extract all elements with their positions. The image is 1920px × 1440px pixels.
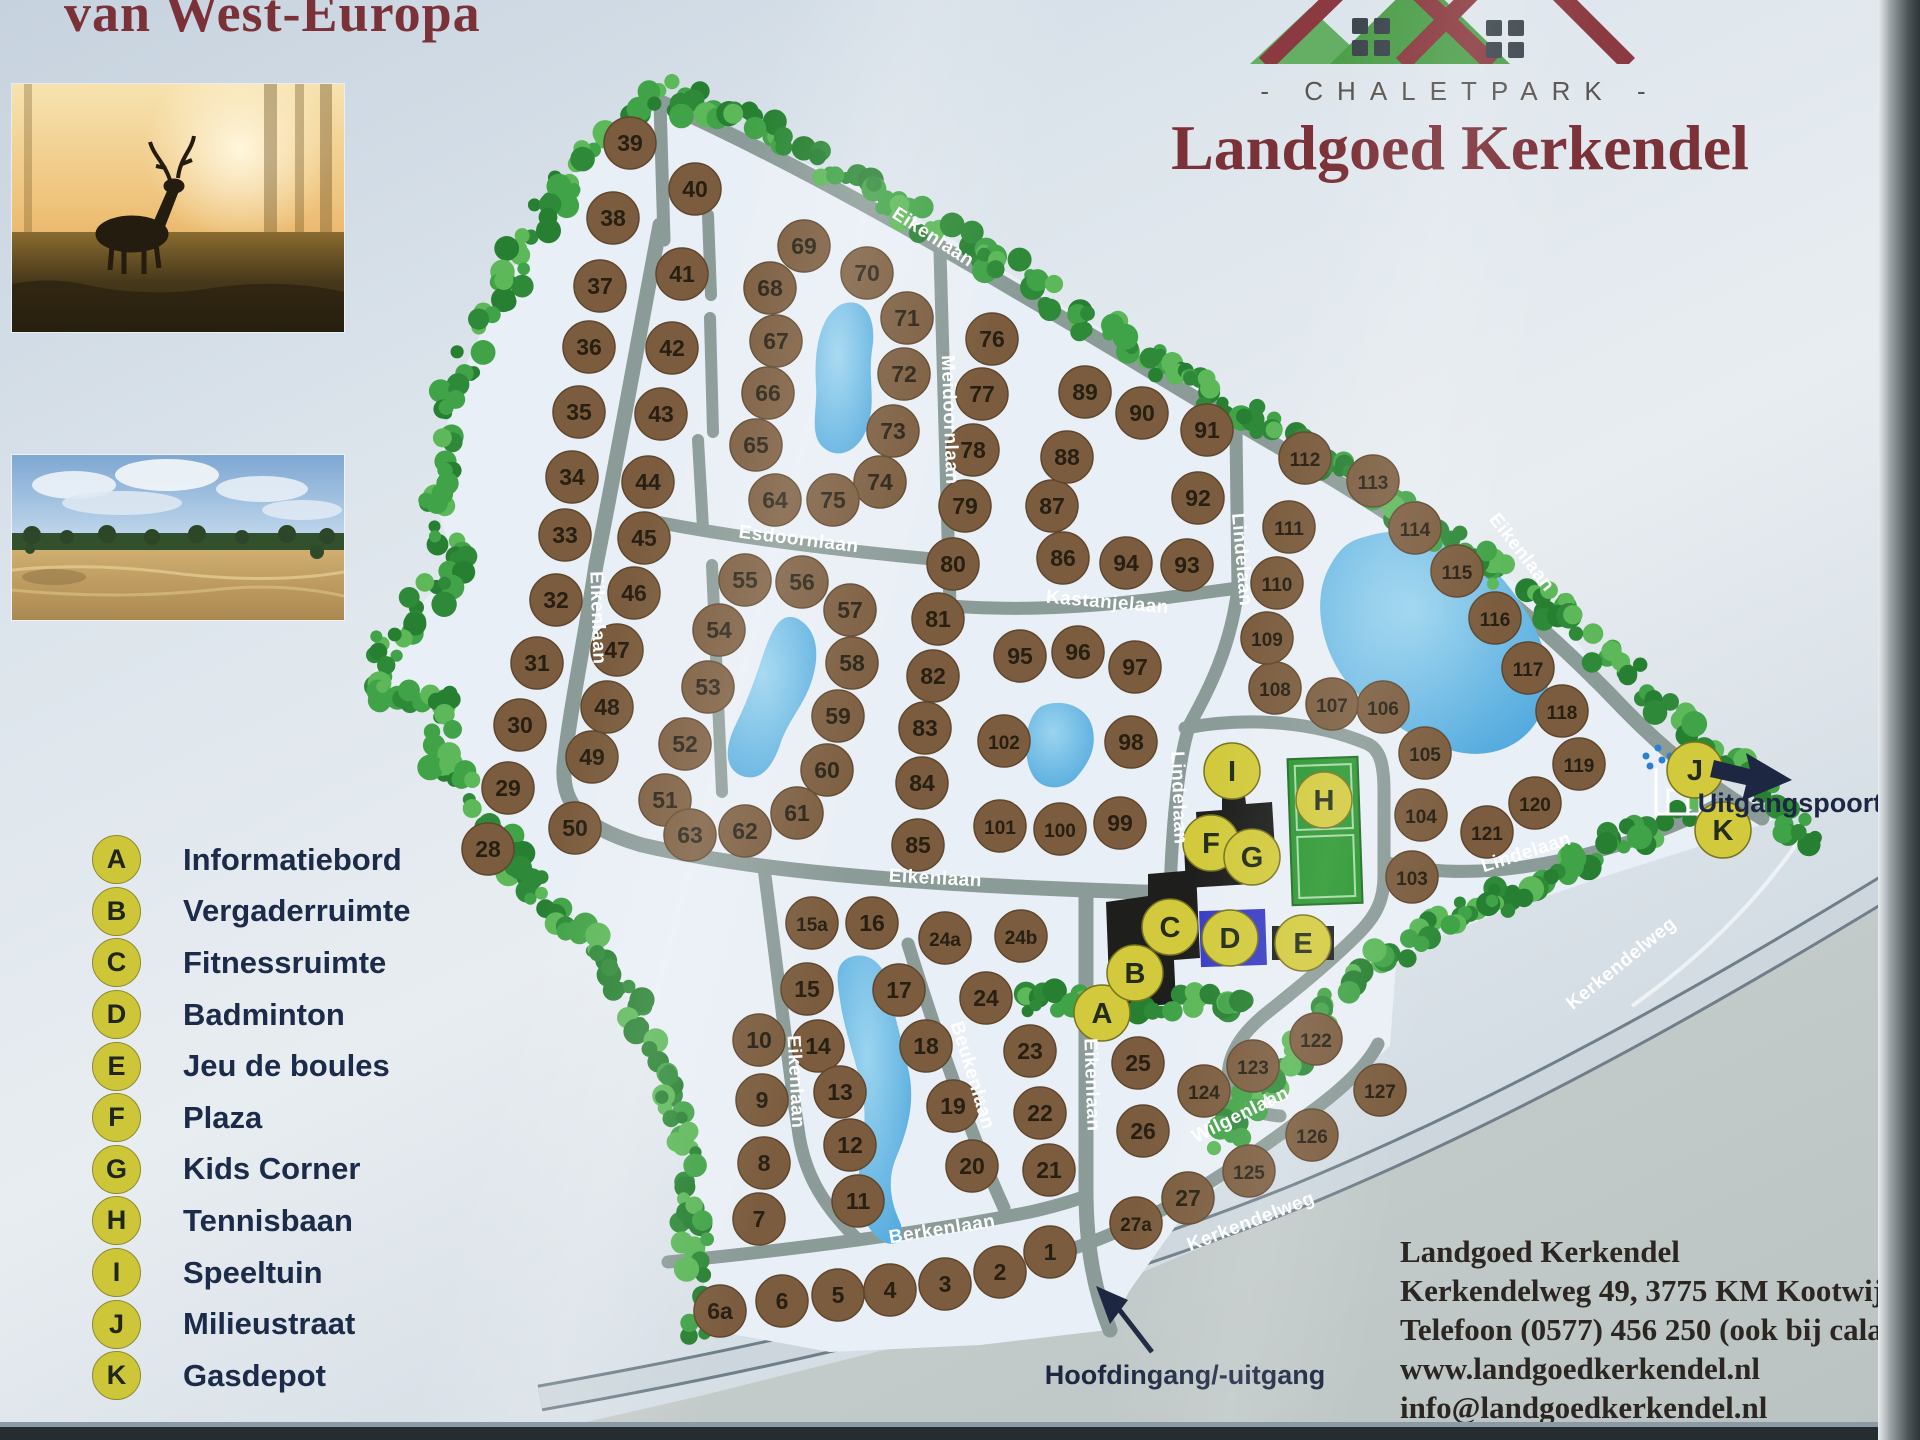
svg-text:19: 19 (940, 1093, 966, 1119)
plot-marker-15: 15 (781, 963, 833, 1015)
plot-marker-109: 109 (1241, 612, 1293, 664)
street-label-lindelaan: Lindelaan (1166, 751, 1190, 845)
plot-marker-24a: 24a (919, 912, 971, 964)
facility-marker-B: B (1107, 945, 1163, 1001)
svg-text:112: 112 (1290, 450, 1321, 471)
park-map-sign: van West-Europa (0, 0, 1920, 1440)
svg-text:95: 95 (1007, 643, 1033, 669)
plot-marker-74: 74 (854, 456, 906, 508)
plot-marker-87: 87 (1026, 480, 1078, 532)
svg-text:116: 116 (1480, 610, 1511, 631)
plot-marker-115: 115 (1431, 545, 1483, 597)
svg-text:24a: 24a (929, 930, 961, 951)
svg-text:57: 57 (837, 597, 863, 623)
svg-text:24b: 24b (1005, 928, 1038, 949)
plot-marker-39: 39 (604, 117, 656, 169)
plot-marker-61: 61 (771, 787, 823, 839)
plot-marker-114: 114 (1389, 502, 1441, 554)
svg-text:15: 15 (794, 976, 820, 1002)
plot-marker-9: 9 (736, 1074, 788, 1126)
plot-marker-15a: 15a (786, 897, 838, 949)
svg-text:71: 71 (894, 305, 920, 331)
svg-text:111: 111 (1274, 519, 1304, 540)
plot-marker-122: 122 (1290, 1013, 1342, 1065)
plot-marker-6: 6 (756, 1275, 808, 1327)
svg-text:9: 9 (756, 1087, 769, 1113)
plot-marker-98: 98 (1105, 716, 1157, 768)
svg-text:84: 84 (909, 770, 935, 796)
svg-text:16: 16 (859, 910, 885, 936)
legend-key-badge: I (92, 1248, 141, 1297)
plot-marker-89: 89 (1059, 366, 1111, 418)
plot-marker-28: 28 (462, 823, 514, 875)
svg-text:51: 51 (652, 787, 678, 813)
svg-text:86: 86 (1050, 545, 1076, 571)
plot-marker-22: 22 (1014, 1087, 1066, 1139)
plot-marker-59: 59 (812, 690, 864, 742)
facility-marker-H: H (1296, 772, 1352, 828)
legend-item-label: Badminton (183, 997, 345, 1033)
svg-text:108: 108 (1259, 680, 1291, 701)
plot-marker-94: 94 (1100, 537, 1152, 589)
plot-marker-71: 71 (881, 292, 933, 344)
svg-text:109: 109 (1251, 630, 1283, 651)
svg-text:5: 5 (832, 1282, 845, 1308)
svg-text:101: 101 (984, 818, 1016, 839)
plot-marker-112: 112 (1279, 432, 1331, 484)
plot-marker-76: 76 (966, 313, 1018, 365)
svg-text:33: 33 (552, 522, 578, 548)
legend-key-badge: K (92, 1351, 141, 1400)
svg-text:48: 48 (594, 694, 620, 720)
svg-text:90: 90 (1129, 400, 1155, 426)
plot-marker-18: 18 (900, 1020, 952, 1072)
plot-marker-42: 42 (646, 322, 698, 374)
plot-marker-21: 21 (1023, 1144, 1075, 1196)
svg-text:78: 78 (960, 437, 986, 463)
svg-text:100: 100 (1044, 821, 1076, 842)
svg-text:36: 36 (576, 334, 602, 360)
plot-marker-80: 80 (927, 538, 979, 590)
plot-marker-125: 125 (1223, 1145, 1275, 1197)
svg-text:85: 85 (905, 832, 931, 858)
plot-marker-116: 116 (1469, 592, 1521, 644)
plot-marker-97: 97 (1109, 641, 1161, 693)
plot-marker-5: 5 (812, 1269, 864, 1321)
plot-marker-12: 12 (824, 1119, 876, 1171)
svg-text:D: D (1220, 923, 1241, 955)
plot-marker-33: 33 (539, 509, 591, 561)
plot-marker-120: 120 (1509, 777, 1561, 829)
svg-text:89: 89 (1072, 379, 1098, 405)
svg-text:3: 3 (939, 1271, 952, 1297)
plot-marker-119: 119 (1553, 738, 1605, 790)
svg-text:56: 56 (789, 569, 815, 595)
svg-text:122: 122 (1300, 1031, 1332, 1052)
svg-text:18: 18 (913, 1033, 939, 1059)
svg-text:52: 52 (672, 731, 698, 757)
svg-text:40: 40 (682, 176, 708, 202)
svg-text:102: 102 (988, 733, 1020, 754)
contact-phone: Telefoon (0577) 456 250 (ook bij calamit… (1400, 1310, 1920, 1349)
plot-marker-29: 29 (482, 762, 534, 814)
svg-text:107: 107 (1316, 696, 1348, 717)
svg-text:43: 43 (648, 401, 674, 427)
legend-item-label: Milieustraat (183, 1306, 355, 1342)
svg-text:14: 14 (805, 1033, 831, 1059)
svg-text:94: 94 (1113, 550, 1139, 576)
svg-text:J: J (1687, 755, 1703, 787)
svg-text:54: 54 (706, 617, 732, 643)
svg-text:E: E (1293, 928, 1312, 960)
svg-text:120: 120 (1519, 795, 1551, 816)
plot-marker-55: 55 (719, 554, 771, 606)
svg-text:38: 38 (600, 205, 626, 231)
plot-marker-49: 49 (566, 731, 618, 783)
plot-marker-20: 20 (946, 1140, 998, 1192)
svg-text:118: 118 (1547, 703, 1578, 724)
plot-marker-52: 52 (659, 718, 711, 770)
plot-marker-95: 95 (994, 630, 1046, 682)
plot-marker-64: 64 (749, 474, 801, 526)
plot-marker-84: 84 (896, 757, 948, 809)
svg-text:127: 127 (1364, 1082, 1396, 1103)
plot-marker-32: 32 (530, 574, 582, 626)
legend-item-G: GKids Corner (92, 1144, 410, 1196)
plot-marker-65: 65 (730, 419, 782, 471)
svg-text:98: 98 (1118, 729, 1144, 755)
plot-marker-90: 90 (1116, 387, 1168, 439)
legend-item-A: AInformatiebord (92, 834, 410, 886)
svg-text:23: 23 (1017, 1038, 1043, 1064)
svg-text:96: 96 (1065, 639, 1091, 665)
plot-marker-58: 58 (826, 637, 878, 689)
plot-marker-92: 92 (1172, 472, 1224, 524)
legend-key-badge: A (92, 835, 141, 884)
legend-item-label: Vergaderruimte (183, 893, 410, 929)
plot-marker-35: 35 (553, 386, 605, 438)
plot-marker-107: 107 (1306, 678, 1358, 730)
svg-text:55: 55 (732, 567, 758, 593)
svg-text:75: 75 (820, 487, 846, 513)
svg-text:124: 124 (1188, 1083, 1220, 1104)
svg-text:60: 60 (814, 757, 840, 783)
plot-marker-36: 36 (563, 321, 615, 373)
svg-text:C: C (1160, 912, 1181, 944)
svg-text:25: 25 (1125, 1050, 1151, 1076)
facility-marker-I: I (1204, 743, 1260, 799)
plot-marker-96: 96 (1052, 626, 1104, 678)
svg-text:24: 24 (973, 985, 999, 1011)
svg-text:63: 63 (677, 822, 703, 848)
plot-marker-69: 69 (778, 220, 830, 272)
plot-marker-127: 127 (1354, 1064, 1406, 1116)
plot-marker-8: 8 (738, 1137, 790, 1189)
facility-marker-G: G (1224, 829, 1280, 885)
plot-marker-88: 88 (1041, 431, 1093, 483)
svg-text:11: 11 (846, 1188, 871, 1214)
svg-text:37: 37 (587, 273, 613, 299)
plot-marker-44: 44 (622, 456, 674, 508)
svg-text:103: 103 (1396, 869, 1428, 890)
svg-text:119: 119 (1564, 756, 1595, 777)
legend-key-badge: J (92, 1300, 141, 1349)
plot-marker-63: 63 (664, 809, 716, 861)
svg-text:58: 58 (839, 650, 865, 676)
legend-item-label: Kids Corner (183, 1151, 360, 1187)
plot-marker-30: 30 (494, 699, 546, 751)
plot-marker-113: 113 (1347, 455, 1399, 507)
plot-marker-124: 124 (1178, 1065, 1230, 1117)
plot-marker-31: 31 (511, 637, 563, 689)
street-label-kerkendelweg: Kerkendelweg (1563, 913, 1681, 1014)
svg-text:13: 13 (827, 1079, 853, 1105)
plot-marker-38: 38 (587, 192, 639, 244)
svg-text:87: 87 (1039, 493, 1065, 519)
plot-marker-66: 66 (742, 367, 794, 419)
svg-text:59: 59 (825, 703, 851, 729)
plot-marker-45: 45 (618, 512, 670, 564)
legend-key-badge: B (92, 887, 141, 936)
svg-text:12: 12 (837, 1132, 863, 1158)
plot-marker-34: 34 (546, 451, 598, 503)
svg-text:A: A (1092, 998, 1113, 1030)
plot-marker-48: 48 (581, 681, 633, 733)
plot-marker-68: 68 (744, 262, 796, 314)
svg-text:82: 82 (920, 663, 946, 689)
svg-text:K: K (1713, 815, 1734, 847)
plot-marker-106: 106 (1357, 681, 1409, 733)
legend-item-I: ISpeeltuin (92, 1247, 410, 1299)
plot-marker-126: 126 (1286, 1109, 1338, 1161)
plot-marker-4: 4 (864, 1264, 916, 1316)
plot-marker-73: 73 (867, 405, 919, 457)
svg-text:80: 80 (940, 551, 966, 577)
legend-item-label: Informatiebord (183, 842, 402, 878)
plot-marker-60: 60 (801, 744, 853, 796)
pond (815, 302, 874, 453)
legend-item-label: Gasdepot (183, 1358, 326, 1394)
svg-text:34: 34 (559, 464, 585, 490)
svg-text:92: 92 (1185, 485, 1211, 511)
legend-key-badge: E (92, 1042, 141, 1091)
svg-text:6: 6 (776, 1288, 789, 1314)
svg-text:110: 110 (1262, 575, 1293, 596)
plot-marker-27a: 27a (1110, 1197, 1162, 1249)
legend-item-K: KGasdepot (92, 1350, 410, 1402)
plot-marker-25: 25 (1112, 1037, 1164, 1089)
plot-marker-103: 103 (1386, 851, 1438, 903)
plot-marker-81: 81 (912, 593, 964, 645)
legend-item-label: Jeu de boules (183, 1048, 390, 1084)
svg-text:115: 115 (1442, 563, 1473, 584)
svg-text:104: 104 (1405, 807, 1437, 828)
contact-block: Landgoed Kerkendel Kerkendelweg 49, 3775… (1400, 1232, 1920, 1427)
plot-marker-118: 118 (1536, 685, 1588, 737)
svg-text:73: 73 (880, 418, 906, 444)
entrance-label: Hoofdingang/-uitgang (1045, 1360, 1325, 1390)
svg-text:31: 31 (524, 650, 550, 676)
svg-text:20: 20 (959, 1153, 985, 1179)
plot-marker-79: 79 (939, 480, 991, 532)
svg-text:35: 35 (566, 399, 592, 425)
plot-marker-67: 67 (750, 315, 802, 367)
svg-text:97: 97 (1122, 654, 1148, 680)
svg-text:44: 44 (635, 469, 661, 495)
svg-text:F: F (1202, 828, 1220, 860)
plot-marker-91: 91 (1181, 404, 1233, 456)
svg-text:91: 91 (1194, 417, 1220, 443)
legend-key-badge: H (92, 1196, 141, 1245)
svg-text:26: 26 (1130, 1118, 1156, 1144)
plot-marker-23: 23 (1004, 1025, 1056, 1077)
svg-text:64: 64 (762, 487, 788, 513)
svg-text:10: 10 (746, 1027, 772, 1053)
svg-text:106: 106 (1367, 699, 1399, 720)
svg-text:1: 1 (1044, 1239, 1057, 1265)
svg-text:83: 83 (912, 715, 938, 741)
svg-text:29: 29 (495, 775, 521, 801)
plot-marker-2: 2 (974, 1246, 1026, 1298)
svg-text:117: 117 (1513, 660, 1544, 681)
plot-marker-27: 27 (1162, 1172, 1214, 1224)
legend-key-badge: G (92, 1145, 141, 1194)
plot-marker-53: 53 (682, 661, 734, 713)
plot-marker-7: 7 (733, 1193, 785, 1245)
svg-text:28: 28 (475, 836, 501, 862)
plot-marker-6a: 6a (694, 1285, 746, 1337)
svg-text:77: 77 (969, 381, 995, 407)
plot-marker-110: 110 (1251, 557, 1303, 609)
svg-text:62: 62 (732, 818, 758, 844)
sign-frame-right (1878, 0, 1920, 1440)
svg-text:105: 105 (1409, 745, 1441, 766)
svg-text:2: 2 (994, 1259, 1007, 1285)
plot-marker-70: 70 (841, 247, 893, 299)
plot-marker-16: 16 (846, 897, 898, 949)
svg-text:22: 22 (1027, 1100, 1053, 1126)
svg-text:99: 99 (1107, 810, 1133, 836)
svg-text:46: 46 (621, 580, 647, 606)
plot-marker-123: 123 (1227, 1040, 1279, 1092)
legend-item-F: FPlaza (92, 1092, 410, 1144)
svg-text:H: H (1314, 785, 1335, 817)
plot-marker-108: 108 (1249, 662, 1301, 714)
svg-text:114: 114 (1400, 520, 1431, 541)
plot-marker-105: 105 (1399, 727, 1451, 779)
svg-text:61: 61 (784, 800, 810, 826)
legend-item-D: DBadminton (92, 989, 410, 1041)
street-label-eikenlaan: Eikenlaan (585, 571, 609, 665)
plot-marker-99: 99 (1094, 797, 1146, 849)
facility-marker-C: C (1142, 899, 1198, 955)
map-legend: AInformatiebordBVergaderruimteCFitnessru… (92, 834, 410, 1402)
svg-text:4: 4 (884, 1277, 897, 1303)
legend-key-badge: C (92, 938, 141, 987)
plot-marker-101: 101 (974, 800, 1026, 852)
street-label-eikenlaan: Eikenlaan (1079, 1038, 1103, 1132)
legend-item-label: Fitnessruimte (183, 945, 386, 981)
svg-text:53: 53 (695, 674, 721, 700)
svg-text:27: 27 (1175, 1185, 1201, 1211)
legend-item-J: JMilieustraat (92, 1298, 410, 1350)
legend-item-H: HTennisbaan (92, 1195, 410, 1247)
plot-marker-40: 40 (669, 163, 721, 215)
legend-item-B: BVergaderruimte (92, 886, 410, 938)
legend-key-badge: F (92, 1093, 141, 1142)
svg-text:8: 8 (758, 1150, 771, 1176)
svg-text:68: 68 (757, 275, 783, 301)
svg-text:50: 50 (562, 815, 588, 841)
svg-text:65: 65 (743, 432, 769, 458)
svg-text:21: 21 (1036, 1157, 1062, 1183)
exit-label: Uitgangspoort (1698, 788, 1882, 818)
plot-marker-86: 86 (1037, 532, 1089, 584)
svg-text:93: 93 (1174, 552, 1200, 578)
plot-marker-54: 54 (693, 604, 745, 656)
svg-text:39: 39 (617, 130, 643, 156)
legend-item-label: Tennisbaan (183, 1203, 353, 1239)
facility-marker-D: D (1202, 910, 1258, 966)
plot-marker-77: 77 (956, 368, 1008, 420)
plot-marker-72: 72 (878, 348, 930, 400)
legend-key-badge: D (92, 990, 141, 1039)
svg-text:30: 30 (507, 712, 533, 738)
plot-marker-117: 117 (1502, 642, 1554, 694)
plot-marker-62: 62 (719, 805, 771, 857)
svg-text:15a: 15a (796, 915, 828, 936)
svg-text:G: G (1241, 842, 1264, 874)
plot-marker-24b: 24b (995, 910, 1047, 962)
svg-text:66: 66 (755, 380, 781, 406)
plot-marker-10: 10 (733, 1014, 785, 1066)
plot-marker-43: 43 (635, 388, 687, 440)
svg-text:41: 41 (669, 261, 695, 287)
plot-marker-111: 111 (1263, 501, 1315, 553)
legend-item-E: EJeu de boules (92, 1040, 410, 1092)
svg-text:42: 42 (659, 335, 685, 361)
svg-text:45: 45 (631, 525, 657, 551)
plot-marker-1: 1 (1024, 1226, 1076, 1278)
plot-marker-56: 56 (776, 556, 828, 608)
contact-address: Kerkendelweg 49, 3775 KM Kootwijk (1400, 1271, 1920, 1310)
svg-text:121: 121 (1471, 824, 1503, 845)
plot-marker-17: 17 (873, 964, 925, 1016)
plot-marker-24: 24 (960, 972, 1012, 1024)
svg-text:70: 70 (854, 260, 880, 286)
sign-frame-bottom (0, 1427, 1920, 1440)
svg-text:125: 125 (1233, 1163, 1265, 1184)
plot-marker-3: 3 (919, 1258, 971, 1310)
svg-text:69: 69 (791, 233, 817, 259)
plot-marker-104: 104 (1395, 789, 1447, 841)
svg-text:6a: 6a (707, 1298, 733, 1324)
facility-marker-E: E (1275, 915, 1331, 971)
plot-marker-83: 83 (899, 702, 951, 754)
svg-text:67: 67 (763, 328, 789, 354)
plot-marker-85: 85 (892, 819, 944, 871)
plot-marker-11: 11 (832, 1175, 884, 1227)
svg-text:I: I (1228, 756, 1236, 788)
plot-marker-57: 57 (824, 584, 876, 636)
legend-item-C: CFitnessruimte (92, 937, 410, 989)
contact-website: www.landgoedkerkendel.nl (1400, 1349, 1920, 1388)
plot-marker-93: 93 (1161, 539, 1213, 591)
svg-text:49: 49 (579, 744, 605, 770)
legend-item-label: Plaza (183, 1100, 262, 1136)
plot-marker-75: 75 (807, 474, 859, 526)
plot-marker-41: 41 (656, 248, 708, 300)
